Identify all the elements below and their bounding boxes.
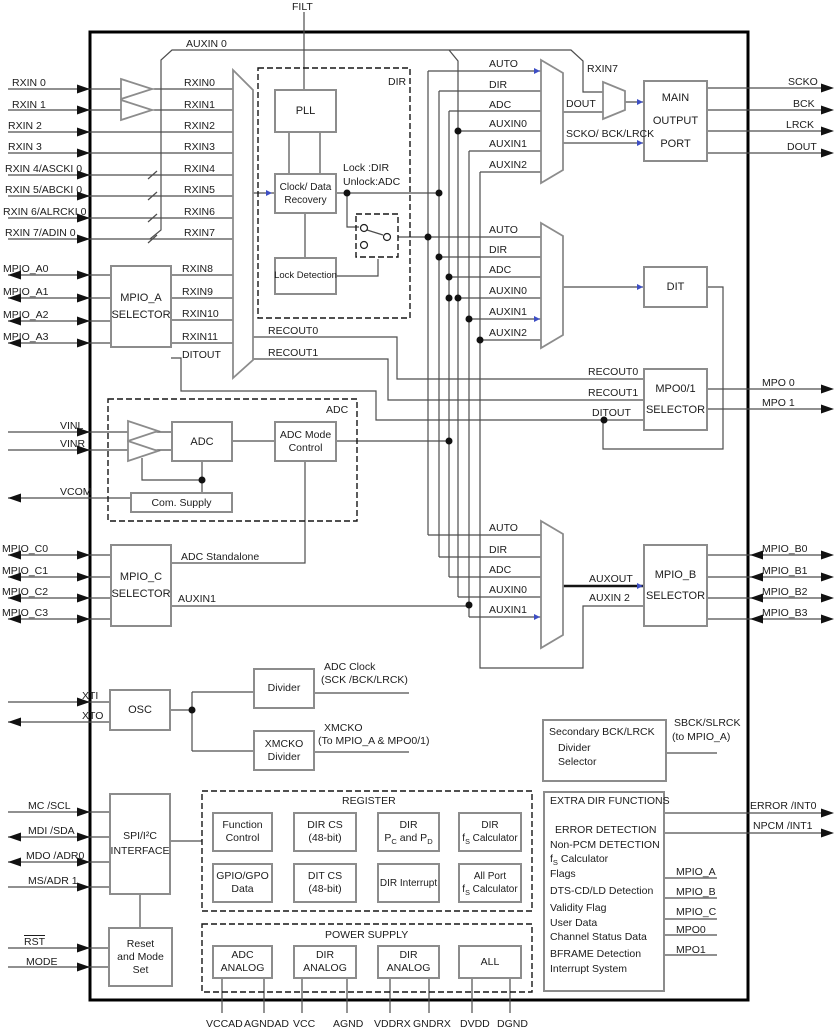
junction-dot bbox=[199, 477, 206, 484]
pin-arrow bbox=[8, 718, 21, 727]
pin-arrow bbox=[77, 833, 90, 842]
vinr-buffer bbox=[128, 441, 158, 461]
junction-dot bbox=[466, 316, 473, 323]
pin-xto: XTO bbox=[82, 710, 103, 722]
extra-item-dts: DTS-CD/LD Detection bbox=[550, 885, 653, 897]
pin-scko: SCKO bbox=[788, 76, 818, 88]
clock-data-recovery-box-text: Recovery bbox=[284, 194, 326, 207]
pin-arrow bbox=[77, 339, 90, 348]
extra-title: EXTRA DIR FUNCTIONS bbox=[550, 795, 670, 807]
pin-rxin0: RXIN 0 bbox=[12, 77, 46, 89]
adc-analog-box: ADCANALOG bbox=[212, 945, 273, 979]
sig-rxin4: RXIN4 bbox=[184, 163, 215, 175]
pin-mpio-c1: MPIO_C1 bbox=[2, 565, 48, 577]
pin-dout: DOUT bbox=[787, 141, 817, 153]
extra-item-validity: Validity Flag bbox=[550, 902, 606, 914]
pin-mpio-a0: MPIO_A0 bbox=[3, 263, 49, 275]
mux1-auxin2: AUXIN2 bbox=[489, 159, 527, 171]
mux-input-mark bbox=[266, 190, 272, 196]
pin-arrow bbox=[821, 829, 834, 838]
extra-item-channel-status: Channel Status Data bbox=[550, 931, 647, 943]
mux2-auxin1: AUXIN1 bbox=[489, 306, 527, 318]
pin-xti: XTI bbox=[82, 690, 98, 702]
adc-box: ADC bbox=[171, 421, 233, 462]
stub-mpo0: MPO0 bbox=[676, 924, 706, 936]
pin-arrow bbox=[77, 317, 90, 326]
sig-xmcko-1: XMCKO bbox=[324, 722, 363, 734]
mpo01-selector-box: MPO0/1SELECTOR bbox=[643, 368, 708, 431]
osc-box-text: OSC bbox=[128, 703, 152, 717]
dir-pc-pd-box-text: DIR bbox=[399, 819, 417, 832]
pin-arrow bbox=[77, 808, 90, 817]
all-port-fs-calculator-box-text: fS Calculator bbox=[462, 883, 517, 896]
junction-dot bbox=[189, 707, 196, 714]
rxin7-bypass-mux bbox=[603, 82, 625, 119]
pin-ms-adr1: MS/ADR 1 bbox=[28, 875, 78, 887]
pin-arrow bbox=[8, 494, 21, 503]
pin-mpio-a2: MPIO_A2 bbox=[3, 309, 49, 321]
mux-input-mark bbox=[534, 316, 540, 322]
pll-box-text: PLL bbox=[296, 104, 316, 118]
pin-mdo-adr0: MDO /ADR0 bbox=[26, 850, 84, 862]
dir-analog-box-1-text: ANALOG bbox=[303, 962, 347, 975]
osc-box: OSC bbox=[109, 689, 171, 731]
lock-switch-outline bbox=[356, 214, 398, 257]
mux2-adc: ADC bbox=[489, 264, 511, 276]
note-lock-dir: Lock :DIR bbox=[343, 162, 389, 174]
junction-dot bbox=[436, 190, 443, 197]
pin-agndad: AGNDAD bbox=[244, 1018, 289, 1030]
sig-sbck-2: (to MPIO_A) bbox=[672, 731, 730, 743]
pin-arrow bbox=[77, 271, 90, 280]
pin-arrow bbox=[821, 615, 834, 624]
pin-arrow bbox=[821, 809, 834, 818]
mux2-auxin0: AUXIN0 bbox=[489, 285, 527, 297]
sig-recout0-left: RECOUT0 bbox=[268, 325, 318, 337]
pin-npcm-int1: NPCM /INT1 bbox=[753, 820, 813, 832]
title-power-supply: POWER SUPPLY bbox=[325, 929, 408, 941]
tag-dir: DIR bbox=[388, 76, 406, 88]
pin-gndrx: GNDRX bbox=[413, 1018, 451, 1030]
pin-arrow bbox=[821, 405, 834, 414]
xmcko-divider-box-text: XMCKO bbox=[265, 738, 304, 751]
mpio-a-selector-box-text: SELECTOR bbox=[111, 307, 170, 324]
dir-analog-box-2-text: ANALOG bbox=[387, 962, 431, 975]
junction-dot bbox=[446, 438, 453, 445]
dir-cs-box-text: DIR CS bbox=[307, 819, 343, 832]
sec-line-1: Secondary BCK/LRCK bbox=[549, 726, 655, 738]
dit-source-mux bbox=[541, 223, 563, 348]
stub-mpo1: MPO1 bbox=[676, 944, 706, 956]
pin-arrow bbox=[77, 573, 90, 582]
pin-rxin4: RXIN 4/ASCKI 0 bbox=[5, 163, 82, 175]
sig-recout1-right: RECOUT1 bbox=[588, 387, 638, 399]
divider-box: Divider bbox=[253, 668, 315, 709]
dir-analog-box-2: DIRANALOG bbox=[377, 945, 440, 979]
text-part: and P bbox=[397, 832, 427, 844]
mpio-a-selector-box-text: MPIO_A bbox=[120, 290, 162, 307]
sig-recout0-right: RECOUT0 bbox=[588, 366, 638, 378]
pin-vcom: VCOM bbox=[60, 486, 92, 498]
dit-box: DIT bbox=[643, 266, 708, 308]
sec-line-3: Selector bbox=[558, 756, 597, 768]
mux2-auxin2: AUXIN2 bbox=[489, 327, 527, 339]
mux2-dir: DIR bbox=[489, 244, 507, 256]
sig-adc-clock-2: (SCK /BCK/LRCK) bbox=[321, 674, 408, 686]
pin-rxin6: RXIN 6/ALRCKI 0 bbox=[3, 206, 86, 218]
pin-bck: BCK bbox=[793, 98, 815, 110]
text-part: S bbox=[465, 888, 470, 897]
pin-arrow bbox=[821, 594, 834, 603]
lock-detection-box-text: Lock Detection bbox=[274, 270, 337, 282]
pin-mpio-c2: MPIO_C2 bbox=[2, 586, 48, 598]
stub-mpio-c: MPIO_C bbox=[676, 906, 716, 918]
pin-arrow bbox=[77, 551, 90, 560]
pin-arrow bbox=[77, 294, 90, 303]
reset-mode-set-box-text: and Mode bbox=[117, 951, 164, 964]
text-part: D bbox=[427, 837, 432, 846]
junction-dot bbox=[455, 295, 462, 302]
pin-rxin2: RXIN 2 bbox=[8, 120, 42, 132]
pin-arrow bbox=[8, 858, 21, 867]
text-part: Calculator bbox=[558, 853, 608, 865]
adc-mode-control-box-text: ADC Mode bbox=[280, 429, 331, 442]
sig-auxin0-top: AUXIN 0 bbox=[186, 38, 227, 50]
pin-mpio-b3: MPIO_B3 bbox=[762, 607, 808, 619]
text-part: C bbox=[391, 837, 396, 846]
vinl-buffer bbox=[128, 421, 158, 441]
sig-ditout-right: DITOUT bbox=[592, 407, 631, 419]
pin-vcc: VCC bbox=[293, 1018, 315, 1030]
sig-sbck-1: SBCK/SLRCK bbox=[674, 717, 741, 729]
pin-lrck: LRCK bbox=[786, 119, 814, 131]
dit-cs-box-text: (48-bit) bbox=[308, 883, 341, 896]
extra-item-non-pcm: Non-PCM DETECTION bbox=[550, 839, 660, 851]
spi-i2c-interface-box: SPI/I²CINTERFACE bbox=[109, 793, 171, 895]
switch-contact-dir bbox=[361, 225, 368, 232]
com-supply-box: Com. Supply bbox=[130, 492, 233, 513]
dir-interrupt-box: DIR Interrupt bbox=[377, 863, 440, 903]
dir-fs-calculator-box-text: fS Calculator bbox=[462, 832, 517, 845]
dit-cs-box: DIT CS(48-bit) bbox=[293, 863, 357, 903]
dir-analog-box-2-text: DIR bbox=[399, 949, 417, 962]
rxin0-buffer bbox=[121, 79, 152, 99]
extra-item-fs-calculator: fS Calculator bbox=[550, 853, 608, 866]
function-control-box-text: Function bbox=[222, 819, 262, 832]
dit-cs-box-text: DIT CS bbox=[308, 870, 342, 883]
stub-mpio-b: MPIO_B bbox=[676, 886, 716, 898]
dir-cs-box: DIR CS(48-bit) bbox=[293, 812, 357, 852]
mpio-b-selector-box-text: MPIO_B bbox=[655, 565, 697, 586]
all-supply-box: ALL bbox=[458, 945, 522, 979]
mux2-auto: AUTO bbox=[489, 224, 518, 236]
pin-rxin1: RXIN 1 bbox=[12, 99, 46, 111]
mux3-adc: ADC bbox=[489, 564, 511, 576]
sig-rxin10: RXIN10 bbox=[182, 308, 219, 320]
sig-rxin11: RXIN11 bbox=[182, 331, 218, 343]
junction-dot bbox=[446, 274, 453, 281]
text-part: S bbox=[465, 837, 470, 846]
pin-arrow bbox=[77, 106, 90, 115]
mpio-b-selector-box: MPIO_BSELECTOR bbox=[643, 544, 708, 627]
mux1-auxin1: AUXIN1 bbox=[489, 138, 527, 150]
sig-recout1-left: RECOUT1 bbox=[268, 347, 318, 359]
pin-mpio-c3: MPIO_C3 bbox=[2, 607, 48, 619]
adc-analog-box-text: ANALOG bbox=[221, 962, 265, 975]
xmcko-divider-box: XMCKODivider bbox=[253, 730, 315, 771]
bottom-pin-wires bbox=[222, 979, 510, 1013]
text-part: S bbox=[553, 858, 558, 867]
sig-rxin7: RXIN7 bbox=[184, 227, 215, 239]
pin-mpio-c0: MPIO_C0 bbox=[2, 543, 48, 555]
switch-contact-adc bbox=[361, 242, 368, 249]
xmcko-divider-box-text: Divider bbox=[268, 751, 301, 764]
junction-dot bbox=[344, 190, 351, 197]
adc-mode-control-box: ADC ModeControl bbox=[274, 421, 337, 462]
sig-adc-standalone: ADC Standalone bbox=[181, 551, 259, 563]
dir-interrupt-box-text: DIR Interrupt bbox=[380, 877, 437, 890]
pin-arrow bbox=[77, 128, 90, 137]
pin-arrow bbox=[77, 235, 90, 244]
mux-input-mark bbox=[534, 614, 540, 620]
pin-arrow bbox=[77, 883, 90, 892]
junction-dot bbox=[466, 602, 473, 609]
pin-arrow bbox=[821, 149, 834, 158]
pin-dvdd: DVDD bbox=[460, 1018, 490, 1030]
dir-fs-calculator-box-text: DIR bbox=[481, 819, 498, 832]
dir-analog-box-1: DIRANALOG bbox=[293, 945, 357, 979]
all-supply-box-text: ALL bbox=[481, 956, 500, 969]
pin-dgnd: DGND bbox=[497, 1018, 528, 1030]
pin-arrow bbox=[77, 594, 90, 603]
note-unlock-adc: Unlock:ADC bbox=[343, 176, 400, 188]
pin-mpio-b2: MPIO_B2 bbox=[762, 586, 808, 598]
mpio-b-selector-box-text: SELECTOR bbox=[646, 586, 705, 607]
sig-rxin0: RXIN0 bbox=[184, 77, 215, 89]
sig-rxin1: RXIN1 bbox=[184, 99, 215, 111]
sig-rxin7-bypass: RXIN7 bbox=[587, 63, 618, 75]
pin-arrow bbox=[77, 149, 90, 158]
text-part: Calculator bbox=[470, 833, 518, 844]
auto-switch bbox=[361, 225, 391, 249]
dir-fs-calculator-box: DIRfS Calculator bbox=[458, 812, 522, 852]
mpio-a-selector-box: MPIO_ASELECTOR bbox=[110, 265, 172, 348]
mpo01-selector-box-text: MPO0/1 bbox=[655, 379, 695, 400]
pin-rst: RST bbox=[24, 936, 45, 948]
adc-box-text: ADC bbox=[190, 435, 213, 449]
title-register: REGISTER bbox=[342, 795, 396, 807]
pin-arrow bbox=[77, 85, 90, 94]
sig-dout: DOUT bbox=[566, 98, 596, 110]
gpio-gpo-data-box: GPIO/GPOData bbox=[212, 863, 273, 903]
junction-dot bbox=[455, 128, 462, 135]
pin-mode: MODE bbox=[26, 956, 58, 968]
tag-adc: ADC bbox=[326, 404, 348, 416]
sig-rxin6: RXIN6 bbox=[184, 206, 215, 218]
spi-i2c-interface-box-text: INTERFACE bbox=[111, 844, 170, 859]
mpio-c-selector-box-text: SELECTOR bbox=[111, 586, 170, 603]
pin-mpo0: MPO 0 bbox=[762, 377, 795, 389]
lock-detection-box: Lock Detection bbox=[274, 257, 337, 295]
mpo01-selector-box-text: SELECTOR bbox=[646, 400, 705, 421]
stub-mpio-a: MPIO_A bbox=[676, 866, 716, 878]
main-output-port-box-text: MAIN bbox=[662, 87, 690, 110]
pin-arrow bbox=[821, 551, 834, 560]
sig-rxin3: RXIN3 bbox=[184, 141, 215, 153]
pll-box: PLL bbox=[274, 89, 337, 133]
mpio-c-selector-box: MPIO_CSELECTOR bbox=[110, 544, 172, 627]
pin-mdi-sda: MDI /SDA bbox=[28, 825, 75, 837]
pin-arrow bbox=[821, 84, 834, 93]
pin-mc-scl: MC /SCL bbox=[28, 800, 71, 812]
pin-mpio-a1: MPIO_A1 bbox=[3, 286, 49, 298]
pin-arrow bbox=[8, 833, 21, 842]
main-output-port-box-text: OUTPUT bbox=[653, 110, 698, 133]
pin-agnd: AGND bbox=[333, 1018, 363, 1030]
pin-mpo1: MPO 1 bbox=[762, 397, 795, 409]
gpio-gpo-data-box-text: Data bbox=[231, 883, 253, 896]
extra-item-error-detection: ERROR DETECTION bbox=[555, 824, 657, 836]
mpio-c-selector-box-text: MPIO_C bbox=[120, 569, 162, 586]
pin-arrow bbox=[821, 106, 834, 115]
main-output-port-box-text: PORT bbox=[660, 133, 690, 156]
sig-rxin8: RXIN8 bbox=[182, 263, 213, 275]
junction-dot bbox=[477, 337, 484, 344]
pin-mpio-a3: MPIO_A3 bbox=[3, 331, 49, 343]
reset-mode-set-box-text: Set bbox=[133, 964, 149, 977]
mux3-dir: DIR bbox=[489, 544, 507, 556]
auxout-source-mux bbox=[541, 521, 563, 648]
sig-ditout-left: DITOUT bbox=[182, 349, 221, 361]
mux3-auxin0: AUXIN0 bbox=[489, 584, 527, 596]
junction-dot bbox=[425, 234, 432, 241]
extra-item-flags: Flags bbox=[550, 868, 576, 880]
pin-arrow bbox=[821, 573, 834, 582]
pin-mpio-b0: MPIO_B0 bbox=[762, 543, 808, 555]
pin-error-int0: ERROR /INT0 bbox=[750, 800, 817, 812]
mux1-dir: DIR bbox=[489, 79, 507, 91]
divider-box-text: Divider bbox=[268, 682, 301, 695]
gpio-gpo-data-box-text: GPIO/GPO bbox=[216, 870, 269, 883]
pin-arrow bbox=[77, 615, 90, 624]
main-output-mux bbox=[541, 60, 563, 183]
pin-arrow bbox=[77, 944, 90, 953]
sig-rxin2: RXIN2 bbox=[184, 120, 215, 132]
sig-rxin5: RXIN5 bbox=[184, 184, 215, 196]
main-output-port-box: MAINOUTPUTPORT bbox=[643, 80, 708, 162]
sig-auxin2-right: AUXIN 2 bbox=[589, 592, 630, 604]
reset-mode-set-box: Resetand ModeSet bbox=[108, 927, 173, 987]
extra-item-interrupt: Interrupt System bbox=[550, 963, 627, 975]
adc-analog-box-text: ADC bbox=[231, 949, 253, 962]
com-supply-box-text: Com. Supply bbox=[151, 497, 211, 509]
pin-vinl: VINL bbox=[60, 420, 83, 432]
junction-dot bbox=[446, 295, 453, 302]
mux3-auxin1: AUXIN1 bbox=[489, 604, 527, 616]
pin-vddrx: VDDRX bbox=[374, 1018, 411, 1030]
dit-box-text: DIT bbox=[667, 280, 685, 294]
dir-pc-pd-box: DIRPC and PD bbox=[377, 812, 440, 852]
adc-mode-control-box-text: Control bbox=[289, 442, 323, 455]
pin-vccad: VCCAD bbox=[206, 1018, 243, 1030]
text-part: Calculator bbox=[470, 884, 518, 895]
sig-auxout: AUXOUT bbox=[589, 573, 633, 585]
clock-data-recovery-box: Clock/ DataRecovery bbox=[274, 173, 337, 214]
chip-block-diagram: MPIO_ASELECTORPLLClock/ DataRecoveryLock… bbox=[0, 0, 835, 1033]
junction-dot bbox=[436, 254, 443, 261]
pin-arrow bbox=[821, 385, 834, 394]
extra-item-bframe: BFRAME Detection bbox=[550, 948, 641, 960]
switch-arm bbox=[367, 230, 383, 235]
pin-arrow bbox=[77, 963, 90, 972]
mux1-adc: ADC bbox=[489, 99, 511, 111]
function-control-box: FunctionControl bbox=[212, 812, 273, 852]
sec-line-2: Divider bbox=[558, 742, 591, 754]
dir-pc-pd-box-text: PC and PD bbox=[384, 832, 432, 845]
pin-rxin3: RXIN 3 bbox=[8, 141, 42, 153]
pin-mpio-b1: MPIO_B1 bbox=[762, 565, 808, 577]
dir-cs-box-text: (48-bit) bbox=[308, 832, 341, 845]
mux-input-mark bbox=[534, 68, 540, 74]
switch-contact-out bbox=[384, 234, 391, 241]
sig-scko-bck-lrck: SCKO/ BCK/LRCK bbox=[566, 128, 654, 140]
reset-mode-set-box-text: Reset bbox=[127, 938, 154, 951]
input-selector-mux bbox=[233, 70, 253, 378]
mux1-auto: AUTO bbox=[489, 58, 518, 70]
rxin1-buffer bbox=[121, 100, 152, 120]
spi-i2c-interface-box-text: SPI/I²C bbox=[123, 829, 157, 844]
mux3-auto: AUTO bbox=[489, 522, 518, 534]
function-control-box-text: Control bbox=[226, 832, 260, 845]
all-port-fs-calculator-box-text: All Port bbox=[474, 870, 506, 883]
clock-data-recovery-box-text: Clock/ Data bbox=[280, 181, 332, 194]
dir-analog-box-1-text: DIR bbox=[316, 949, 334, 962]
sig-auxin1-out: AUXIN1 bbox=[178, 593, 216, 605]
pin-vinr: VINR bbox=[60, 438, 85, 450]
pin-arrow bbox=[821, 127, 834, 136]
pin-filt: FILT bbox=[292, 1, 313, 13]
sig-adc-clock-1: ADC Clock bbox=[324, 661, 375, 673]
all-port-fs-calculator-box: All PortfS Calculator bbox=[458, 863, 522, 903]
pin-rxin7: RXIN 7/ADIN 0 bbox=[5, 227, 76, 239]
pin-rxin5: RXIN 5/ABCKI 0 bbox=[5, 184, 82, 196]
sig-xmcko-2: (To MPIO_A & MPO0/1) bbox=[318, 735, 429, 747]
sig-rxin9: RXIN9 bbox=[182, 286, 213, 298]
mux1-auxin0: AUXIN0 bbox=[489, 118, 527, 130]
extra-item-user-data: User Data bbox=[550, 917, 597, 929]
